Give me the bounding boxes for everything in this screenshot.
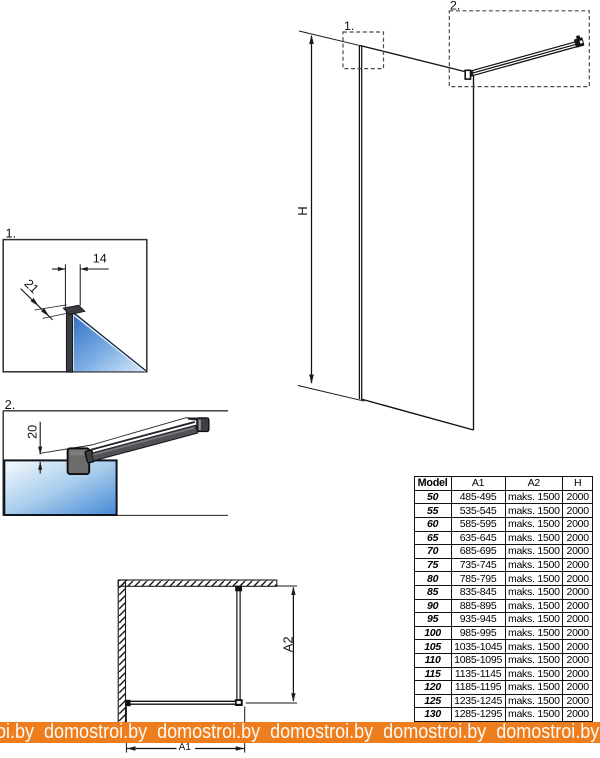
svg-text:1.: 1. bbox=[344, 19, 354, 33]
svg-text:1.: 1. bbox=[6, 226, 17, 241]
svg-text:A1: A1 bbox=[179, 742, 192, 753]
svg-text:2.: 2. bbox=[450, 0, 460, 13]
svg-text:A2: A2 bbox=[281, 636, 296, 652]
svg-text:14: 14 bbox=[93, 252, 107, 266]
svg-text:H: H bbox=[295, 206, 310, 215]
svg-text:2.: 2. bbox=[5, 397, 16, 412]
svg-text:20: 20 bbox=[25, 425, 39, 439]
